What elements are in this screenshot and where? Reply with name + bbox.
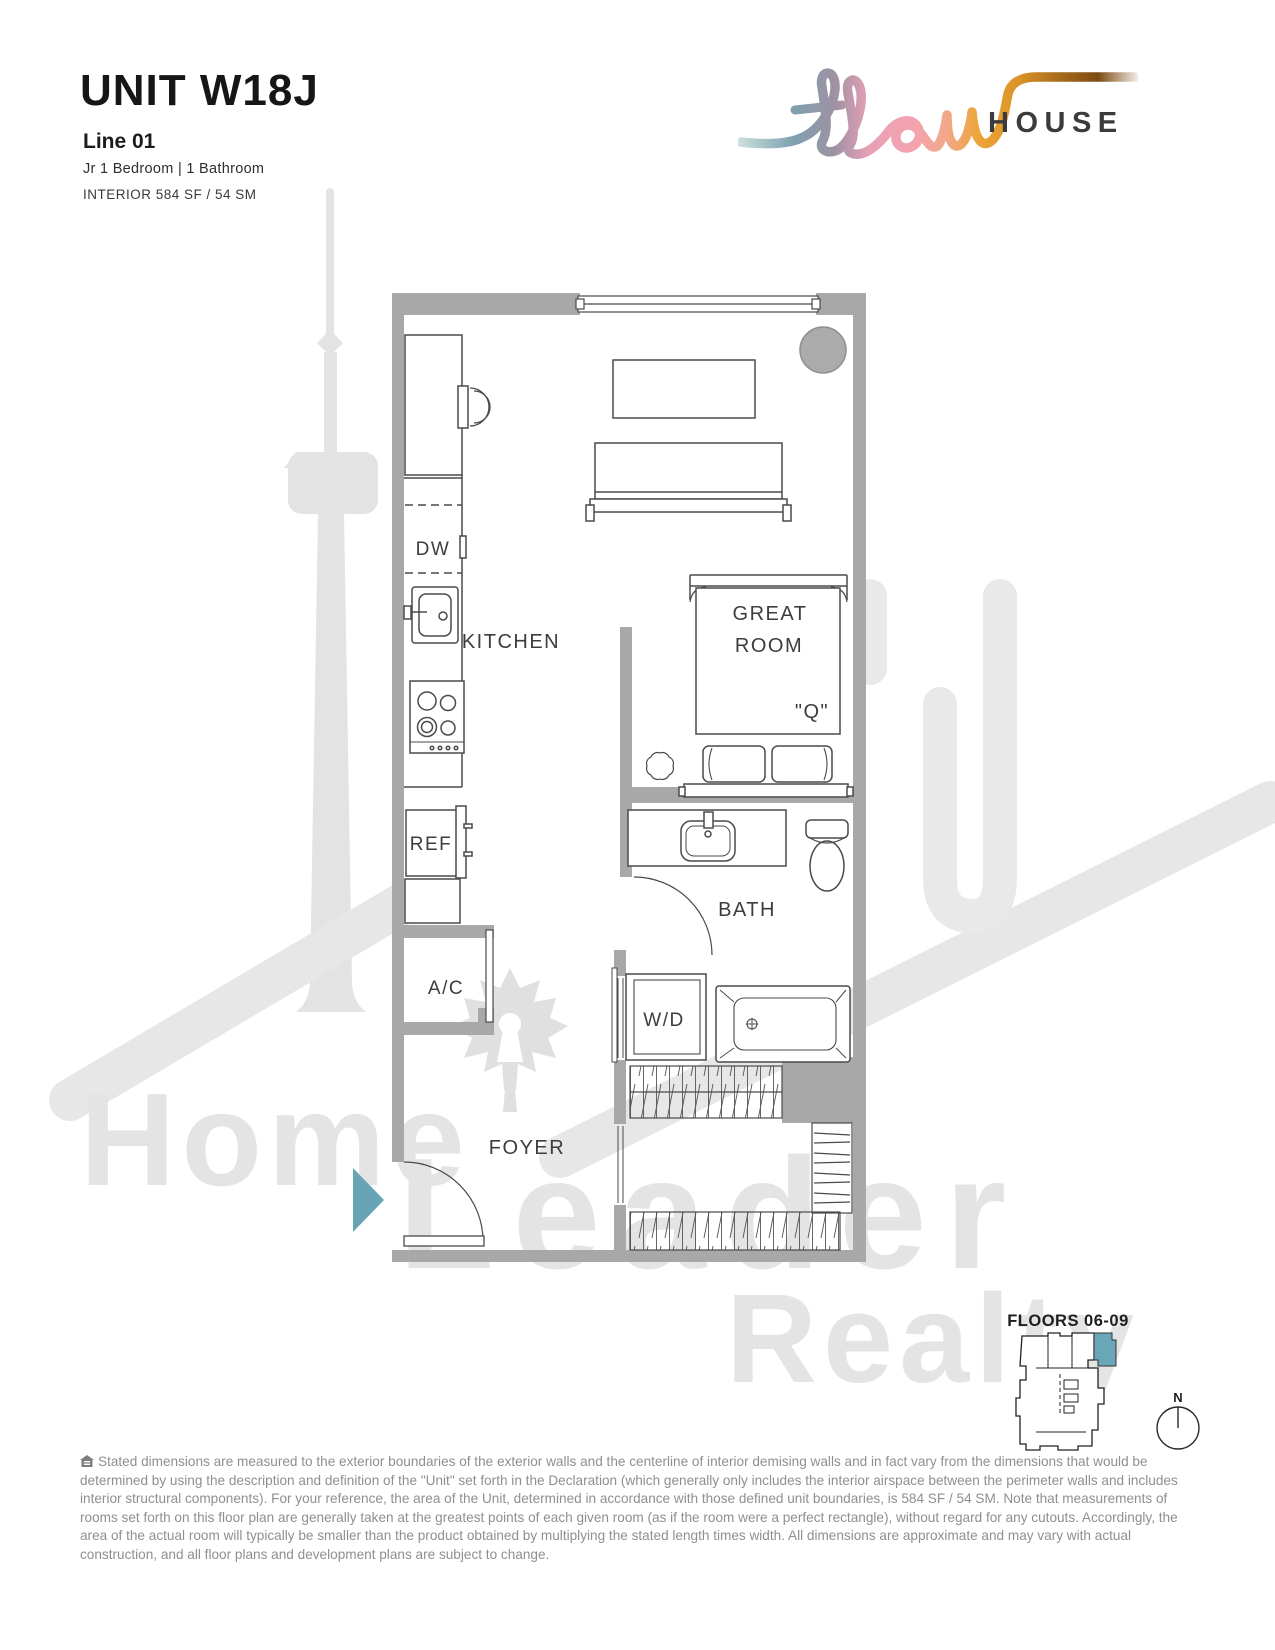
entry-door-swing <box>404 1162 483 1241</box>
keyplan: FLOORS 06-09 <box>1007 1312 1129 1450</box>
floorplan-drawing: KITCHEN GREAT ROOM BATH FOYER "Q" DW REF… <box>0 0 1275 1650</box>
closet-hanging-bottom <box>630 1212 840 1250</box>
lower-cabinet <box>405 879 460 923</box>
entry-door-leaf <box>404 1236 484 1246</box>
flow-house-logo: HOUSE <box>738 60 1138 160</box>
counter-stool <box>458 386 468 428</box>
label-foyer: FOYER <box>489 1137 565 1159</box>
shelf-unit <box>812 1123 852 1213</box>
label-kitchen: KITCHEN <box>462 631 560 653</box>
keyplan-floors-label: FLOORS 06-09 <box>1007 1312 1129 1330</box>
round-table <box>800 327 846 373</box>
vanity <box>628 810 786 866</box>
disclaimer-text: Stated dimensions are measured to the ex… <box>80 1454 1178 1562</box>
label-bed-size: "Q" <box>795 701 829 723</box>
label-refrigerator: REF <box>410 834 453 855</box>
disclaimer: Stated dimensions are measured to the ex… <box>80 1453 1202 1565</box>
bath-door-swing <box>634 877 712 955</box>
desk <box>613 360 755 418</box>
plant-icon <box>647 753 674 780</box>
logo-house-word: HOUSE <box>988 107 1124 139</box>
entry <box>353 1162 484 1246</box>
label-great-room-2: ROOM <box>735 635 803 657</box>
label-great-room-1: GREAT <box>733 603 808 625</box>
page-title: UNIT W18J <box>80 66 319 116</box>
interior-area: INTERIOR 584 SF / 54 SM <box>83 187 257 202</box>
bathtub <box>716 986 850 1062</box>
label-dishwasher: DW <box>416 539 451 560</box>
window <box>576 296 820 312</box>
north-compass-icon: N <box>1157 1390 1199 1449</box>
ac-closet-door <box>486 930 493 1022</box>
compass-north-label: N <box>1173 1390 1182 1405</box>
floorplan-page: Home Leader Realty <box>0 0 1275 1650</box>
equal-housing-icon <box>80 1455 94 1467</box>
entry-marker-icon <box>353 1168 384 1232</box>
label-bath: BATH <box>718 899 776 921</box>
line-label: Line 01 <box>83 130 155 154</box>
toilet <box>806 820 848 891</box>
sofa <box>586 443 791 521</box>
label-ac: A/C <box>428 978 464 999</box>
cooktop <box>410 681 464 753</box>
label-washer-dryer: W/D <box>643 1010 684 1031</box>
keyplan-unit-highlight <box>1094 1333 1116 1366</box>
bed-bath-specs: Jr 1 Bedroom | 1 Bathroom <box>83 161 264 177</box>
kitchen-sink <box>404 587 458 643</box>
